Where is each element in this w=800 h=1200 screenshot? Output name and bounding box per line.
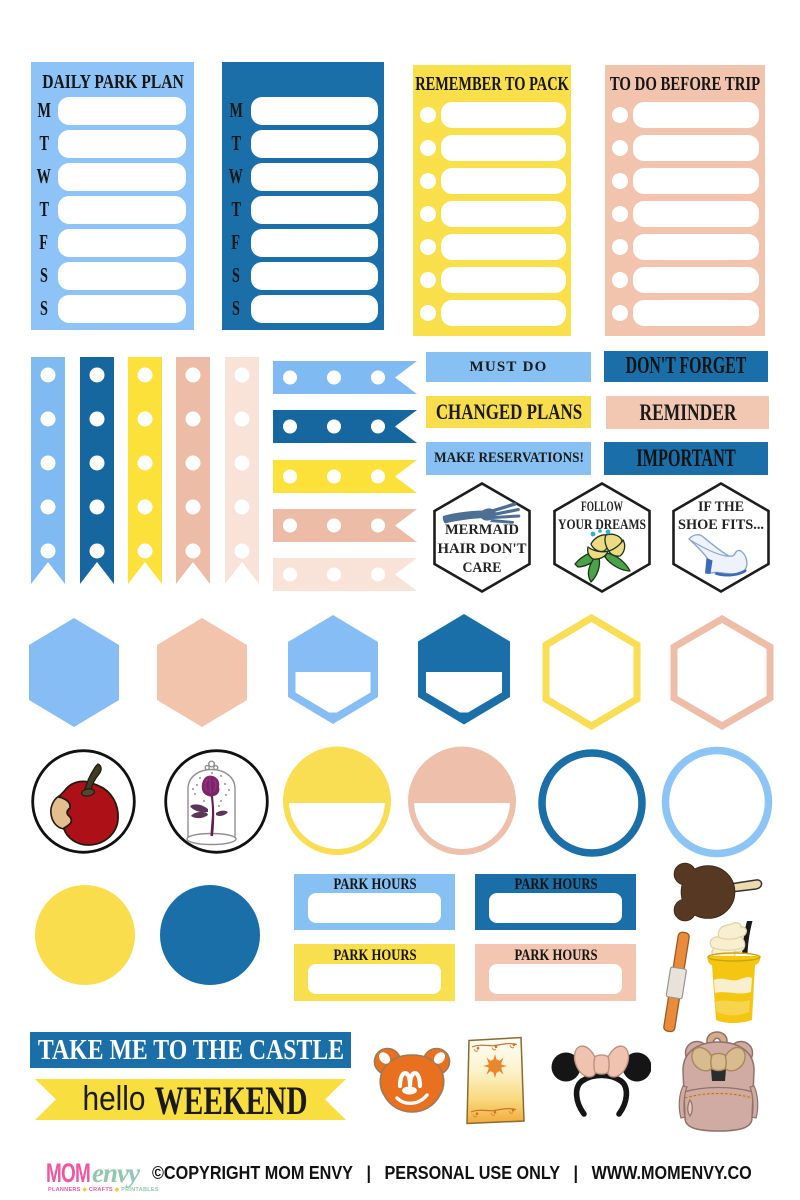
svg-text:MERMAID: MERMAID [445,522,519,538]
svg-text:SHOE FITS...: SHOE FITS... [678,517,764,533]
svg-text:hello: hello [83,1080,146,1118]
svg-text:IF THE: IF THE [698,499,744,515]
svg-text:FOLLOW: FOLLOW [581,499,623,515]
svg-text:CARE: CARE [463,560,502,576]
svg-text:WEEKEND: WEEKEND [155,1079,308,1120]
svg-text:HAIR DON'T: HAIR DON'T [438,541,527,557]
svg-text:YOUR DREAMS: YOUR DREAMS [558,517,646,533]
